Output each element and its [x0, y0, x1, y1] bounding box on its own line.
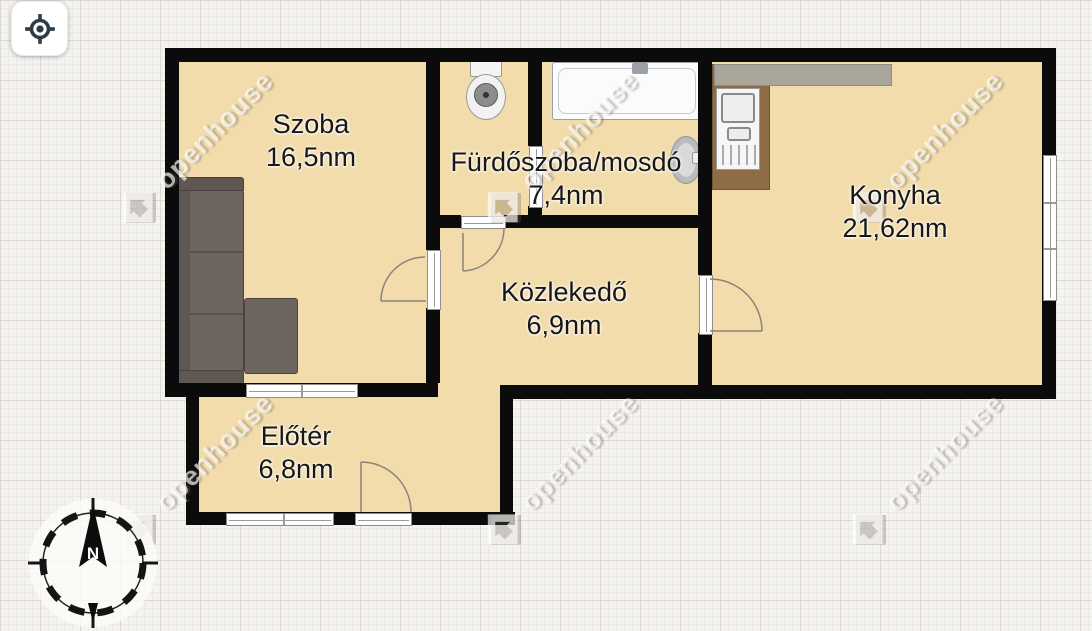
room-name: Konyha — [842, 179, 947, 212]
entrance-door-swing — [361, 462, 411, 512]
room-label-szoba: Szoba 16,5nm — [266, 108, 356, 174]
floorplan-canvas[interactable]: openhouse openhouse openhouse openhouse … — [0, 0, 1092, 631]
floorplan-viewer: { "toolbar": { "locate_button": { "icon"… — [0, 0, 1092, 631]
bath-door-swing — [463, 228, 504, 271]
crosshair-locate-icon — [23, 12, 57, 46]
room-area: 21,62nm — [842, 212, 947, 245]
room-area: 6,9nm — [501, 309, 627, 342]
room-area: 7,4nm — [450, 179, 681, 212]
szoba-door-swing — [381, 257, 426, 301]
compass-rose: N — [27, 497, 159, 629]
compass-north-label: N — [87, 544, 99, 563]
room-label-konyha: Konyha 21,62nm — [842, 179, 947, 245]
room-area: 6,8nm — [258, 453, 333, 486]
room-label-kozlekedo: Közlekedő 6,9nm — [501, 276, 627, 342]
room-name: Közlekedő — [501, 276, 627, 309]
locate-button[interactable] — [11, 1, 68, 56]
room-name: Előtér — [258, 420, 333, 453]
konyha-door-swing — [710, 279, 762, 331]
room-label-eloter: Előtér 6,8nm — [258, 420, 333, 486]
room-name: Fürdőszoba/mosdó — [450, 146, 681, 179]
room-name: Szoba — [266, 108, 356, 141]
room-area: 16,5nm — [266, 141, 356, 174]
room-label-furdoszoba: Fürdőszoba/mosdó 7,4nm — [450, 146, 681, 212]
